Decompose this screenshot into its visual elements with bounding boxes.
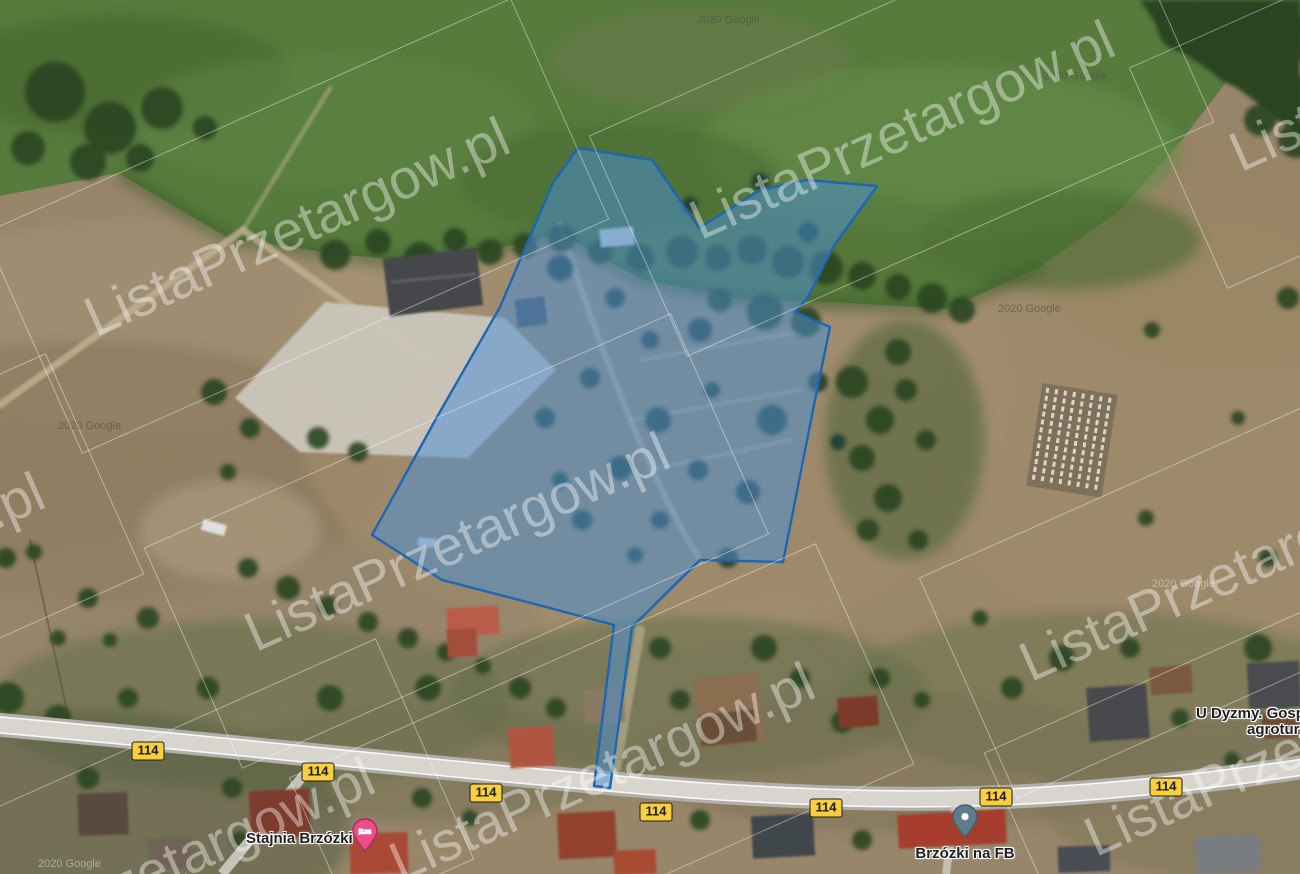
satellite-map[interactable]: 2020 Google 2020 Google 2020 Google 2020… <box>0 0 1300 874</box>
road-shield-114: 114 <box>980 788 1013 807</box>
place-label-brzozki-na-fb: Brzózki na FB <box>915 845 1014 862</box>
lodging-pin-icon[interactable] <box>352 818 378 852</box>
road-shield-114: 114 <box>1150 778 1183 797</box>
road-shield-114: 114 <box>302 763 335 782</box>
place-label-stajnia-brzozki: Stajnia Brzózki <box>246 830 353 847</box>
labels-layer: 114 114 114 114 114 114 114 Stajnia Brzó… <box>0 0 1300 874</box>
place-label-u-dyzmy-line2: agrotury <box>1247 721 1300 738</box>
dot-pin-icon[interactable] <box>952 804 978 838</box>
place-label-u-dyzmy-line1: U Dyzmy. Gospo <box>1196 705 1300 722</box>
road-shield-114: 114 <box>810 799 843 818</box>
pin-dot <box>961 813 968 820</box>
road-shield-114: 114 <box>470 784 503 803</box>
road-shield-114: 114 <box>640 803 673 822</box>
road-shield-114: 114 <box>132 742 165 761</box>
